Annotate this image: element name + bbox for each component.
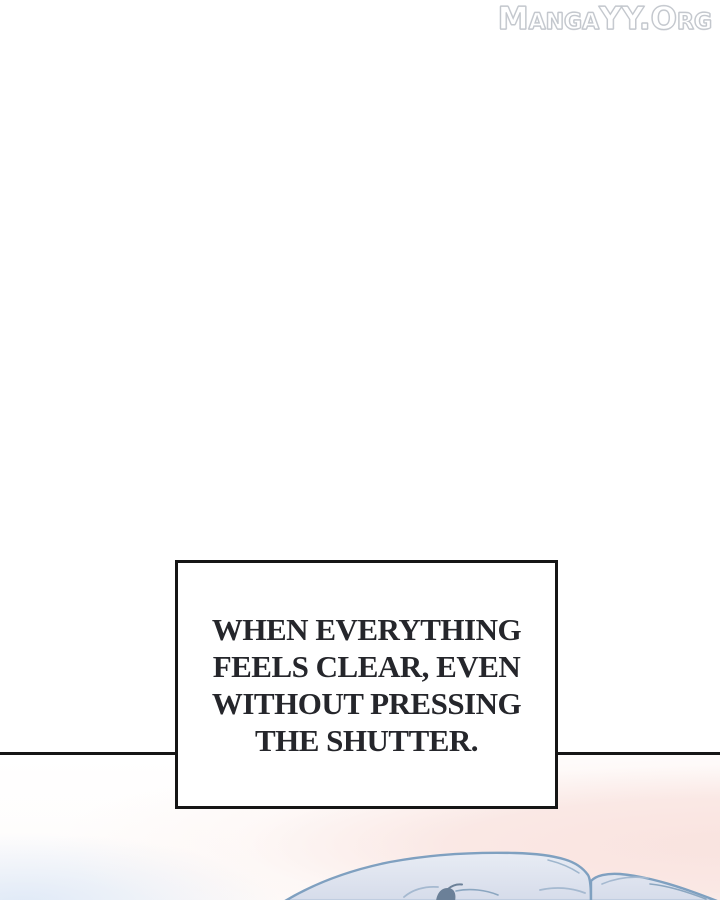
narration-line: THE SHUTTER. [255, 722, 478, 759]
manga-page: MangaYY.Org WHEN EVERYTHING FEELS CLEAR,… [0, 0, 720, 900]
site-watermark: MangaYY.Org [498, 1, 712, 37]
narration-line: WHEN EVERYTHING [212, 611, 521, 648]
narration-box: WHEN EVERYTHING FEELS CLEAR, EVEN WITHOU… [175, 560, 558, 809]
narration-line: WITHOUT PRESSING [212, 685, 521, 722]
narration-line: FEELS CLEAR, EVEN [213, 648, 521, 685]
